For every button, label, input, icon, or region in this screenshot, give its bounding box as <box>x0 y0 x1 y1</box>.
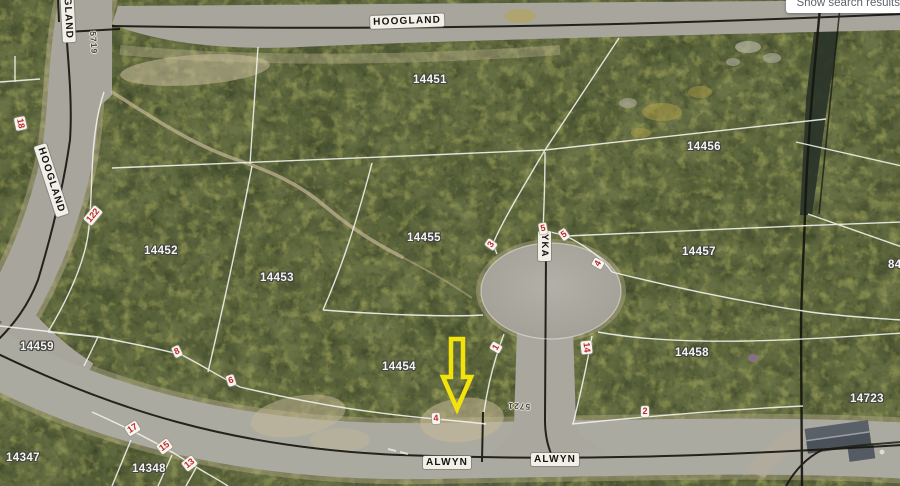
street-label-yka: YKA <box>538 231 551 261</box>
street-label-alwyn-left: ALWYN <box>423 456 471 469</box>
parcel-label-14458: 14458 <box>675 347 709 359</box>
parcel-label-14723: 14723 <box>850 393 884 405</box>
aerial-map-canvas <box>0 0 900 486</box>
parcel-label-14453: 14453 <box>260 272 294 284</box>
aerial-map-viewport[interactable]: 14451 14456 14452 14453 14455 14457 1445… <box>0 0 900 486</box>
lot-marker-14: 14 <box>580 340 592 354</box>
lot-marker-18: 18 <box>14 116 27 131</box>
parcel-label-14454: 14454 <box>382 361 416 373</box>
parcel-label-14455: 14455 <box>407 232 441 244</box>
parcel-label-14452: 14452 <box>144 245 178 257</box>
parcel-label-14459: 14459 <box>20 341 54 353</box>
parcel-label-14457: 14457 <box>682 246 716 258</box>
street-label-hoogland-top: HOOGLAND <box>370 13 444 29</box>
lot-marker-5a: 5 <box>538 222 548 234</box>
parcel-label-14347: 14347 <box>6 452 40 464</box>
erf-annotation-5721: 5721 <box>507 401 530 412</box>
lot-marker-4b: 4 <box>432 413 441 425</box>
show-search-results-button[interactable]: Show search results <box>786 0 900 13</box>
parcel-label-14456: 14456 <box>687 141 721 153</box>
parcel-label-14348: 14348 <box>132 463 166 475</box>
parcel-label-84-partial: 84 <box>888 259 900 271</box>
street-label-alwyn-right: ALWYN <box>531 453 579 466</box>
lot-marker-2: 2 <box>641 406 649 417</box>
erf-annotation-5719: 5719 <box>88 31 100 55</box>
parcel-label-14451: 14451 <box>413 74 447 86</box>
